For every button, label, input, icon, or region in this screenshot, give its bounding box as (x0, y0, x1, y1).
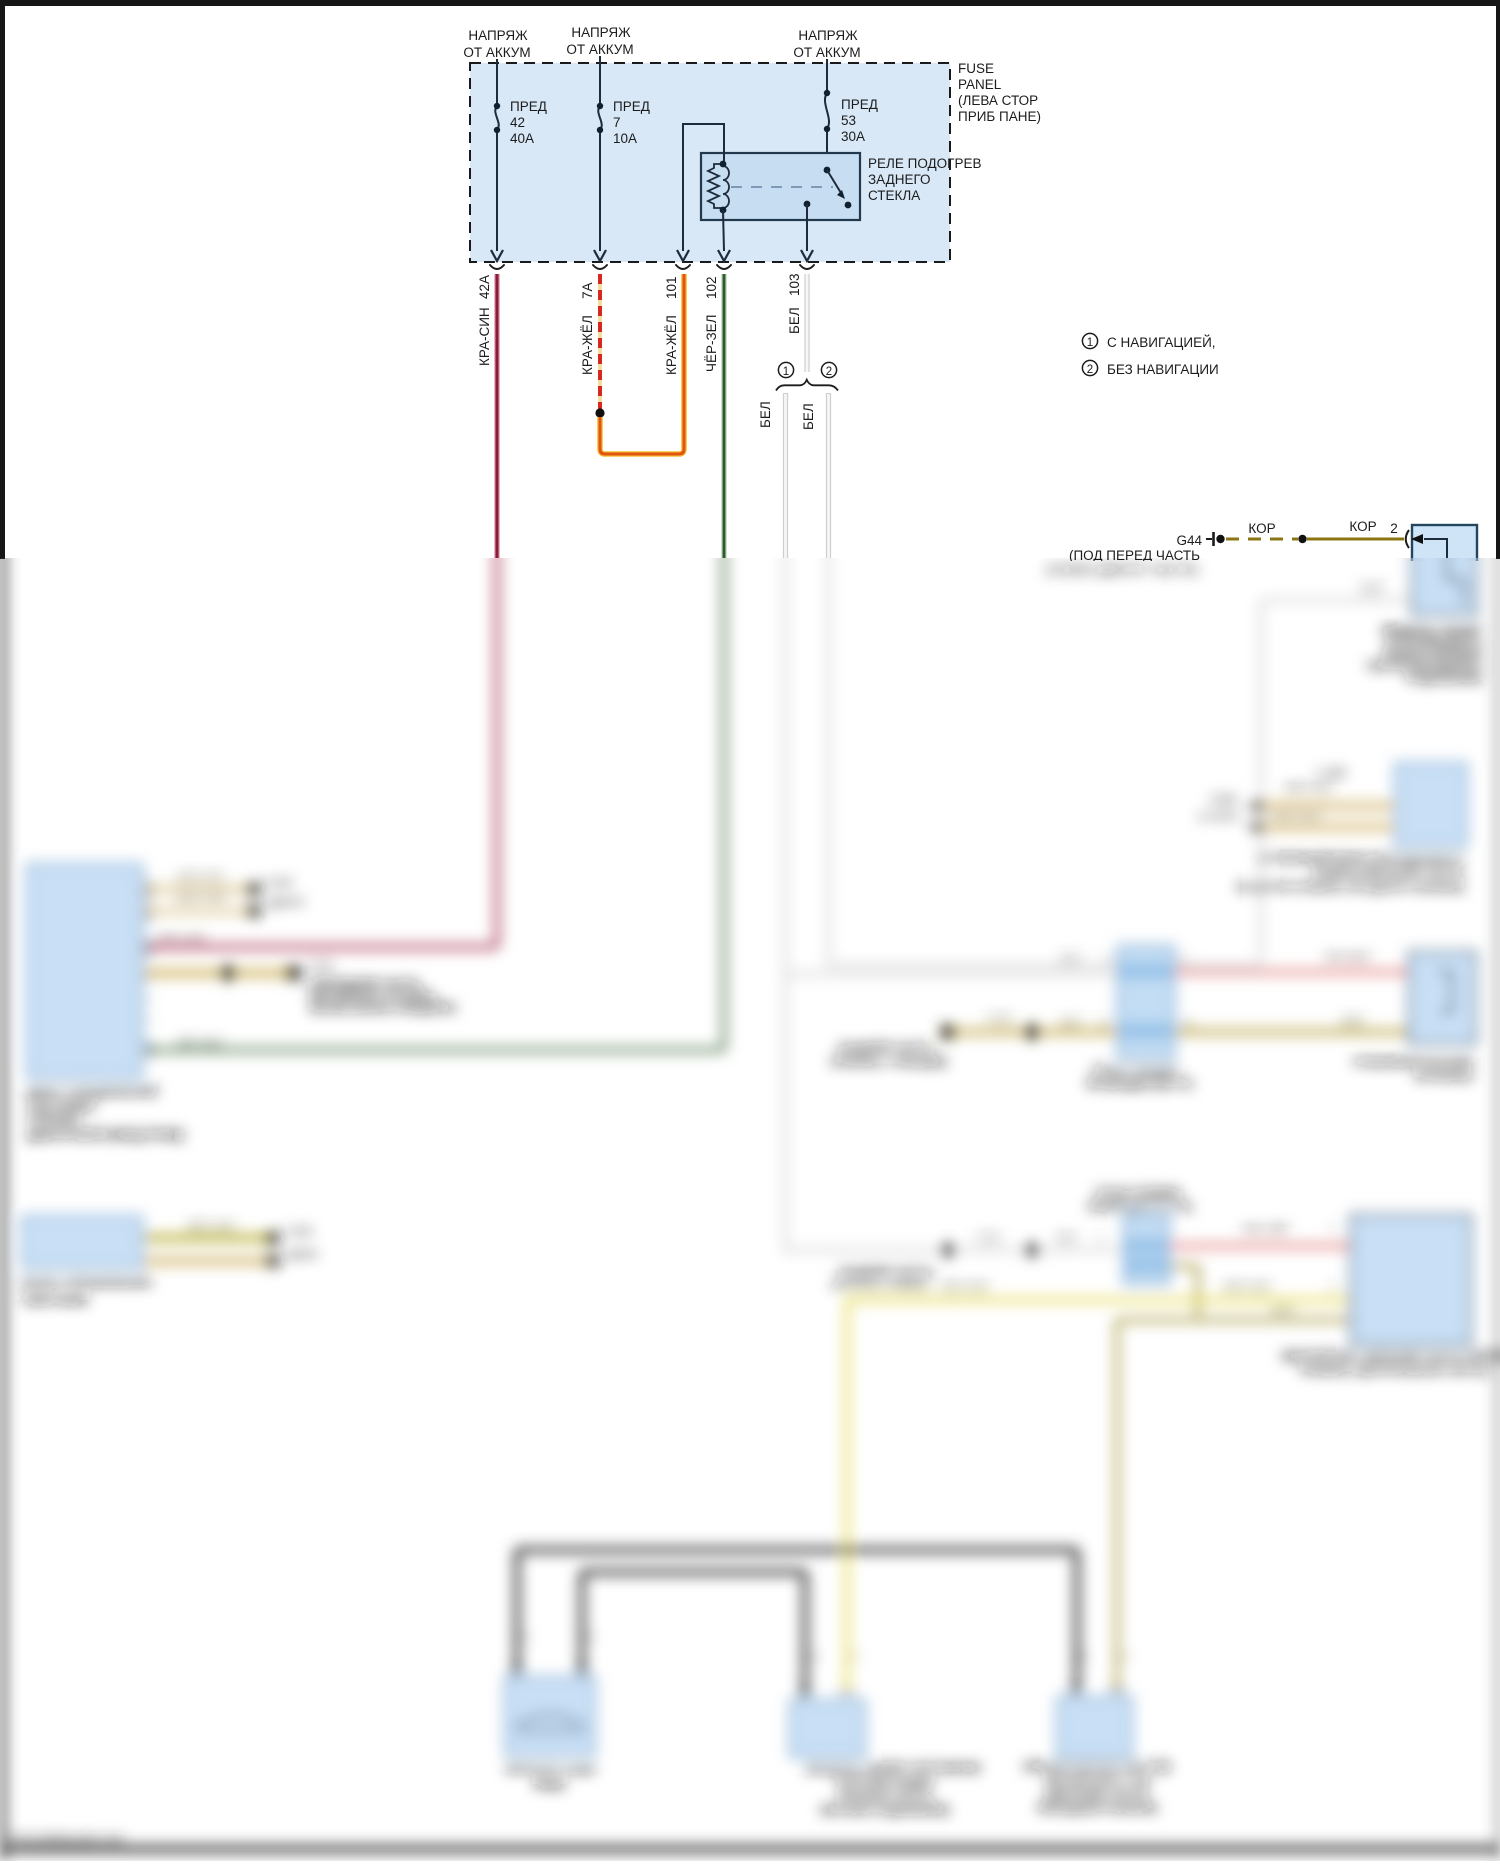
svg-text:7: 7 (613, 115, 621, 130)
svg-text:FUSE: FUSE (958, 61, 994, 76)
svg-text:1: 1 (783, 366, 789, 378)
svg-text:БЕЛ: БЕЛ (787, 307, 802, 334)
svg-text:ЖЁЛ-ЗЕЛ: ЖЁЛ-ЗЕЛ (1284, 784, 1334, 796)
svg-text:ПРОВОДКИ (ЖГУТ): ПРОВОДКИ (ЖГУТ) (1086, 1079, 1193, 1091)
svg-text:ЖЁЛ-КРА: ЖЁЛ-КРА (176, 873, 225, 885)
svg-text:С200: С200 (986, 1015, 1012, 1027)
svg-text:102: 102 (704, 276, 719, 299)
svg-text:С105: С105 (286, 1226, 312, 1238)
svg-text:(АВ-МАГНИТОЛА БЕЗ СД): (АВ-МАГНИТОЛА БЕЗ СД) (1024, 1761, 1171, 1773)
svg-text:3: 3 (1098, 1235, 1104, 1246)
svg-text:НАПРЯЖ: НАПРЯЖ (468, 28, 528, 43)
svg-text:ДИАГН: ДИАГН (268, 897, 305, 909)
svg-text:42А: 42А (477, 275, 492, 299)
svg-text:42: 42 (510, 115, 525, 130)
svg-text:PANEL: PANEL (958, 77, 1002, 92)
svg-text:С304: С304 (975, 1234, 1001, 1246)
svg-text:ЧАСТЬ БАГАЖНОГО: ЧАСТЬ БАГАЖНОГО (1366, 661, 1482, 673)
svg-text:(АНТЕННЫЙ БЛОК СПУТНИКОВОГО: (АНТЕННЫЙ БЛОК СПУТНИКОВОГО (1259, 852, 1464, 865)
svg-text:6: 6 (852, 1652, 858, 1663)
svg-text:БЕЛ: БЕЛ (1060, 954, 1082, 966)
svg-text:ПРИБ ПАНЕ): ПРИБ ПАНЕ) (958, 109, 1041, 124)
svg-text:(ЗАДНЯЯ ЧАСТЬ: (ЗАДНЯЯ ЧАСТЬ (838, 1265, 933, 1277)
svg-text:(ПОД ПЕРЕД ЧАСТЬ: (ПОД ПЕРЕД ЧАСТЬ (1069, 548, 1200, 563)
svg-text:СПУТНИКОВОГО: СПУТНИКОВОГО (1386, 637, 1482, 649)
svg-text:ЗЕРКАЛО ЗАДН: ЗЕРКАЛО ЗАДН (505, 1763, 596, 1775)
svg-text:ЧЁР-ЗЕЛ: ЧЁР-ЗЕЛ (176, 1038, 223, 1050)
svg-text:МАГНИТОЛА С СД: МАГНИТОЛА С СД (1045, 1775, 1149, 1787)
svg-text:ОТДЕЛЕНИЯ): ОТДЕЛЕНИЯ) (1406, 673, 1482, 685)
svg-text:САЛОНА СЛЕВА): САЛОНА СЛЕВА) (832, 1281, 929, 1293)
svg-text:КРА-БЕЛ: КРА-БЕЛ (1325, 953, 1371, 965)
svg-text:ЖЁЛ-ЗЕЛ: ЖЁЛ-ЗЕЛ (186, 1222, 236, 1234)
svg-text:АНТЕННЫ: АНТЕННЫ (1414, 1071, 1473, 1083)
svg-text:(МОДУЛЬ-ТЮНЕР: (МОДУЛЬ-ТЮНЕР (1382, 625, 1482, 637)
svg-text:ProCarManuals.com: ProCarManuals.com (10, 1832, 124, 1846)
svg-text:БЕЛ: БЕЛ (801, 403, 816, 430)
svg-text:КРА-ЖЁЛ: КРА-ЖЁЛ (664, 315, 679, 375)
svg-text:САЛОНА, У КРЫШИ): САЛОНА, У КРЫШИ) (830, 1057, 947, 1069)
svg-text:53: 53 (841, 113, 856, 128)
svg-text:КРА-СИН: КРА-СИН (477, 307, 492, 366)
svg-text:ЖЁЛ-ЗЕЛ: ЖЁЛ-ЗЕЛ (940, 1283, 990, 1295)
svg-text:2 ЧЁР: 2 ЧЁР (1316, 768, 1347, 780)
svg-text:СТЫКОВОЙ РАЗЪЁМ: СТЫКОВОЙ РАЗЪЁМ (1353, 1056, 1473, 1069)
svg-text:НАПРЯЖ: НАПРЯЖ (798, 28, 858, 43)
svg-text:МОТОРНОГО ОТСЕКА,: МОТОРНОГО ОТСЕКА, (310, 991, 438, 1003)
svg-text:РАДИО) (ПРАВАЯ: РАДИО) (ПРАВАЯ (1383, 649, 1482, 661)
svg-text:ПАНЕЛИ, ЦЕНТРАЛЬНАЯ ЧАСТЬ): ПАНЕЛИ, ЦЕНТРАЛЬНАЯ ЧАСТЬ) (1300, 1365, 1490, 1377)
svg-text:101: 101 (664, 276, 679, 299)
svg-text:ПРЕД: ПРЕД (841, 97, 878, 112)
svg-text:(ЗАДНЯЯ ЧАСТЬ: (ЗАДНЯЯ ЧАСТЬ (838, 1043, 933, 1055)
svg-text:ЦЕПИ: ЦЕПИ (286, 1249, 317, 1261)
svg-text:ОТ АККУМ: ОТ АККУМ (566, 42, 633, 57)
svg-text:5: 5 (1330, 1284, 1336, 1295)
svg-text:(У АНТ): (У АНТ) (1199, 811, 1238, 823)
svg-text:(ПРАВАЯ ЧАСТЬ: (ПРАВАЯ ЧАСТЬ (838, 1791, 932, 1803)
svg-text:(СНИЗУ ДВИГАТ ЧАСТИ): (СНИЗУ ДВИГАТ ЧАСТИ) (1046, 562, 1198, 577)
svg-text:ВИДА: ВИДА (533, 1779, 566, 1791)
svg-text:8: 8 (1104, 955, 1110, 966)
svg-text:(МАГНИТОЛА, ВЕРХНЯЯ ЧАСТЬ ПЕРЕ: (МАГНИТОЛА, ВЕРХНЯЯ ЧАСТЬ ПЕРЕДН (1282, 1351, 1500, 1363)
svg-text:10А: 10А (613, 131, 637, 146)
svg-text:ПРЕД: ПРЕД (510, 99, 547, 114)
svg-text:ПЕРЕДНЕЙ ПАНЕЛИ): ПЕРЕДНЕЙ ПАНЕЛИ) (1037, 1802, 1157, 1815)
svg-text:40А: 40А (510, 131, 534, 146)
svg-text:КОР: КОР (1248, 521, 1275, 536)
svg-text:БЛОК УПРАВЛЕНИЯ: БЛОК УПРАВЛЕНИЯ (22, 1274, 151, 1289)
svg-text:ЖЁЛ: ЖЁЛ (1270, 1305, 1295, 1317)
svg-text:БЕЛ: БЕЛ (1056, 1234, 1078, 1246)
svg-text:КОР: КОР (1349, 519, 1376, 534)
svg-text:КРА-ЧЁР: КРА-ЧЁР (1243, 1225, 1289, 1237)
svg-text:1: 1 (1087, 337, 1093, 349)
svg-text:СТЕКЛА: СТЕКЛА (868, 188, 920, 203)
svg-text:ЖЁЛ-ЗЕЛ: ЖЁЛ-ЗЕЛ (1272, 811, 1322, 823)
svg-text:ОТ АККУМ: ОТ АККУМ (793, 45, 860, 60)
svg-text:10: 10 (1182, 1019, 1194, 1030)
svg-text:(ПЕРЕДНЯЯ ЧАСТЬ: (ПЕРЕДНЯЯ ЧАСТЬ (310, 979, 421, 991)
svg-text:ЖЁЛ-ЗЕЛ: ЖЁЛ-ЗЕЛ (1222, 1283, 1272, 1295)
svg-text:С104: С104 (266, 877, 292, 889)
svg-text:(ВЕРХНЯЯ ЧАСТЬ: (ВЕРХНЯЯ ЧАСТЬ (1046, 1789, 1148, 1801)
svg-text:СВЕЧАМИ: СВЕЧАМИ (22, 1292, 88, 1307)
svg-text:ЗАДНЕГО СТЕКЛА, ПО ЦЕНТР САЛОН: ЗАДНЕГО СТЕКЛА, ПО ЦЕНТР САЛОНА) (1236, 882, 1464, 894)
svg-text:1: 1 (523, 1632, 529, 1643)
svg-text:3: 3 (1122, 1652, 1128, 1663)
svg-text:2: 2 (1080, 1652, 1086, 1663)
svg-text:ПРЕД: ПРЕД (613, 99, 650, 114)
svg-text:СИСТЕМЫ: СИСТЕМЫ (27, 1098, 95, 1113)
svg-text:103: 103 (787, 273, 802, 296)
svg-text:С НАВИГАЦИЕЙ,: С НАВИГАЦИЕЙ, (1107, 335, 1216, 350)
svg-text:30А: 30А (841, 129, 865, 144)
svg-text:КОР: КОР (1360, 583, 1384, 597)
svg-text:РАДИО) (ВЕРХНЯЯ ЧАСТЬ: РАДИО) (ВЕРХНЯЯ ЧАСТЬ (1314, 867, 1464, 879)
svg-text:КРА-СИН: КРА-СИН (158, 933, 206, 945)
svg-text:СТЫК СОЕДИН: СТЫК СОЕДИН (1095, 1188, 1181, 1200)
svg-text:РЕЛЕ ПОДОГРЕВ: РЕЛЕ ПОДОГРЕВ (868, 156, 982, 171)
svg-text:7: 7 (1330, 1226, 1336, 1237)
svg-text:4: 4 (812, 1652, 818, 1663)
svg-text:(МОДУЛЬ-ТЮНЕР СПУТНИКОВ: (МОДУЛЬ-ТЮНЕР СПУТНИКОВ (806, 1763, 981, 1775)
svg-text:С409: С409 (1210, 794, 1236, 806)
svg-text:2: 2 (1087, 364, 1093, 376)
svg-text:ДИАГ СОЕДИНЕНИЕ: ДИАГ СОЕДИНЕНИЕ (27, 1083, 158, 1098)
svg-text:2: 2 (826, 366, 832, 378)
svg-text:2: 2 (1390, 521, 1398, 536)
svg-text:ЧЁР-ЗЕЛ: ЧЁР-ЗЕЛ (704, 314, 719, 372)
svg-text:7А: 7А (580, 282, 595, 299)
svg-text:ДВИГАТЕЛЯ (МОД РСМ)): ДВИГАТЕЛЯ (МОД РСМ)) (27, 1127, 184, 1142)
svg-text:(ЛЕВА СТОР: (ЛЕВА СТОР (958, 93, 1038, 108)
svg-text:ВОЗЛЕ БЛОКА ПРЕДОХР): ВОЗЛЕ БЛОКА ПРЕДОХР) (310, 1003, 456, 1015)
svg-text:СПУТНИК РАДИО: СПУТНИК РАДИО (836, 1777, 934, 1789)
svg-text:НАПРЯЖ: НАПРЯЖ (571, 25, 631, 40)
svg-text:ЖЁЛ-ЧЁР: ЖЁЛ-ЧЁР (176, 893, 226, 905)
svg-text:G44: G44 (1176, 533, 1202, 548)
svg-text:УПРАВЛ: УПРАВЛ (27, 1112, 80, 1127)
svg-text:БАГАЖН ОТДЕЛЕНИЯ): БАГАЖН ОТДЕЛЕНИЯ) (821, 1805, 949, 1817)
svg-text:С156: С156 (307, 959, 333, 971)
svg-text:ЗАДНЕГО: ЗАДНЕГО (868, 172, 931, 187)
svg-text:ОТ АККУМ: ОТ АККУМ (463, 45, 530, 60)
svg-text:ЖЁЛ: ЖЁЛ (1340, 1017, 1365, 1029)
svg-text:БЕЗ НАВИГАЦИИ: БЕЗ НАВИГАЦИИ (1107, 362, 1219, 377)
svg-text:БЕЛ: БЕЛ (758, 401, 773, 428)
svg-text:КРА-ЖЁЛ: КРА-ЖЁЛ (580, 315, 595, 375)
svg-text:ПРОВОДКИ (2 ШТ): ПРОВОДКИ (2 ШТ) (1088, 1202, 1192, 1214)
svg-text:2: 2 (588, 1632, 594, 1643)
svg-text:СТЫК СОЕДИН: СТЫК СОЕДИН (1092, 1065, 1178, 1077)
svg-text:8: 8 (1182, 955, 1188, 966)
